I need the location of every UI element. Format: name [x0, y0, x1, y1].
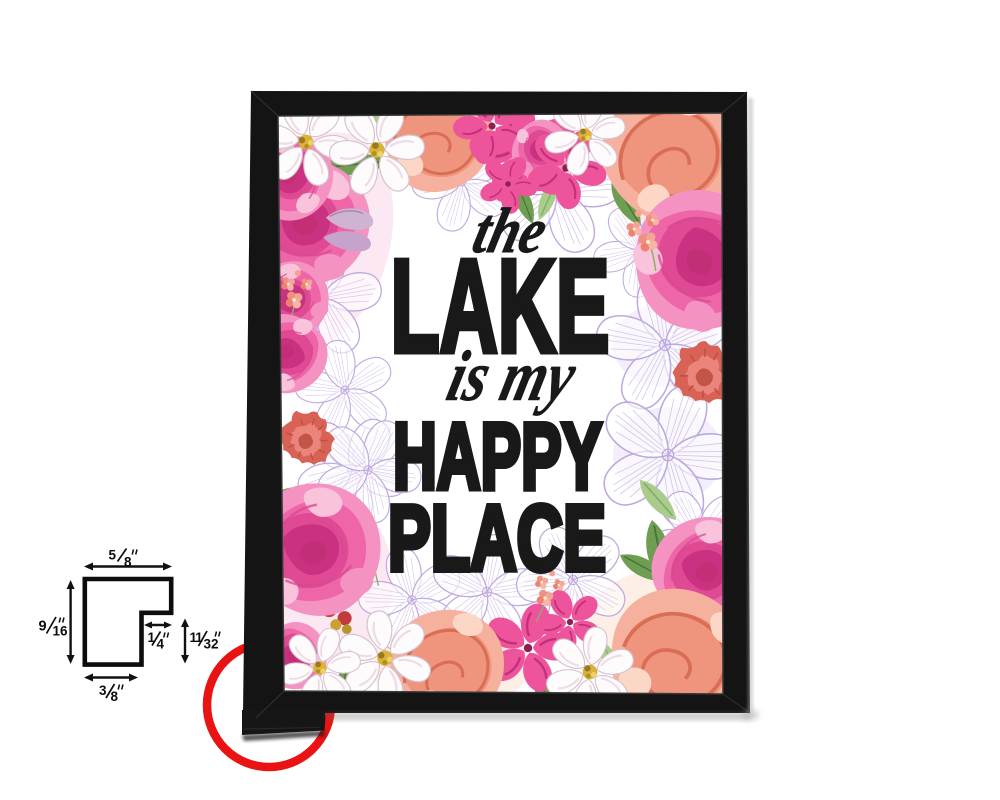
svg-text:5: 5: [109, 548, 117, 563]
svg-text:8: 8: [124, 555, 132, 570]
svg-text:9: 9: [39, 619, 47, 635]
svg-text:8: 8: [111, 689, 119, 704]
svg-text:16: 16: [53, 624, 69, 639]
svg-text:3: 3: [99, 683, 107, 698]
svg-text:4: 4: [157, 637, 165, 652]
svg-text:32: 32: [204, 637, 219, 652]
svg-text:PLACE: PLACE: [388, 486, 606, 590]
